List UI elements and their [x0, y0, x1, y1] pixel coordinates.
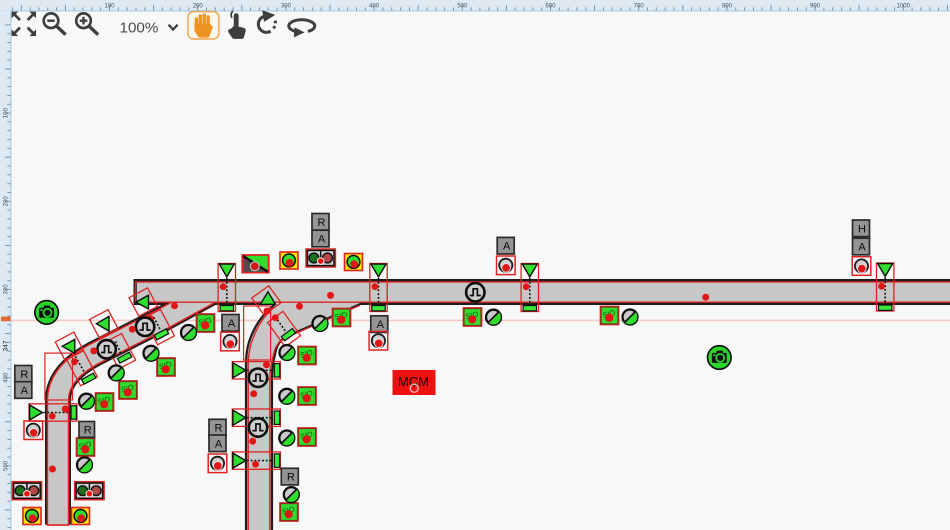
- svg-text:A: A: [21, 385, 29, 397]
- svg-text:1000: 1000: [897, 3, 911, 10]
- svg-text:700: 700: [634, 3, 645, 10]
- svg-text:A: A: [318, 234, 326, 246]
- svg-text:R: R: [287, 472, 295, 484]
- svg-text:100: 100: [2, 107, 9, 118]
- svg-text:A: A: [503, 241, 511, 253]
- svg-text:R: R: [318, 217, 326, 229]
- svg-text:100: 100: [104, 3, 115, 10]
- svg-text:900: 900: [810, 3, 821, 10]
- svg-text:R: R: [215, 423, 223, 435]
- svg-text:A: A: [215, 438, 223, 450]
- svg-text:A: A: [228, 318, 236, 330]
- svg-text:300: 300: [281, 3, 292, 10]
- svg-text:100%: 100%: [120, 20, 159, 37]
- svg-text:500: 500: [457, 3, 468, 10]
- svg-text:A: A: [858, 242, 866, 254]
- svg-text:A: A: [377, 319, 385, 331]
- svg-text:H: H: [858, 223, 866, 235]
- svg-text:200: 200: [193, 3, 204, 10]
- svg-text:500: 500: [2, 460, 9, 471]
- svg-text:300: 300: [2, 284, 9, 295]
- svg-text:600: 600: [545, 3, 556, 10]
- svg-text:400: 400: [369, 3, 380, 10]
- svg-text:200: 200: [2, 196, 9, 207]
- svg-text:R: R: [20, 369, 28, 381]
- svg-text:MCM: MCM: [398, 374, 429, 389]
- svg-text:347: 347: [2, 340, 9, 351]
- svg-text:800: 800: [722, 3, 733, 10]
- svg-text:R: R: [84, 424, 92, 436]
- svg-text:400: 400: [2, 372, 9, 383]
